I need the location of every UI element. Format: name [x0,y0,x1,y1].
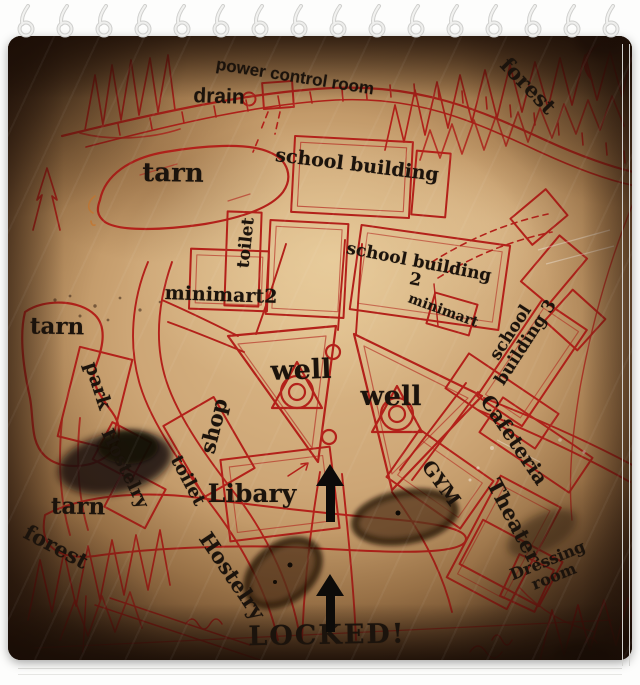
binder-ring-icon [209,4,235,38]
binder-rail [0,2,640,38]
binder-ring-icon [14,4,40,38]
forest-top-right-sketch [385,44,632,160]
forest-bottom-left-sketch [28,530,260,660]
photo-page: power control roomdrainforesttarnschool … [0,0,640,685]
binder-ring-icon [53,4,79,38]
binder-ring-icon [92,4,118,38]
binder-ring-icon [521,4,547,38]
well-symbol-right [372,386,422,432]
paper-speckles [53,295,161,322]
page-edge-line [622,44,623,666]
binder-ring-icon [287,4,313,38]
page-edge-line [629,44,630,666]
plaza-sketch [228,326,482,490]
binder-ring-icon [326,4,352,38]
binder-ring-icon [599,4,625,38]
binder-ring-icon [443,4,469,38]
well-symbol-left [272,362,322,408]
binder-ring-icon [131,4,157,38]
binder-ring-icon [404,4,430,38]
binder-ring-icon [248,4,274,38]
binder-ring-icon [482,4,508,38]
tarn-upper-sketch [89,146,289,229]
binder-ring-icon [365,4,391,38]
map-sketch [8,36,632,660]
map-photo [8,36,632,660]
binder-ring-icon [170,4,196,38]
binder-ring-icon [560,4,586,38]
page-edge-line [18,674,622,675]
page-edge-line [18,668,622,669]
